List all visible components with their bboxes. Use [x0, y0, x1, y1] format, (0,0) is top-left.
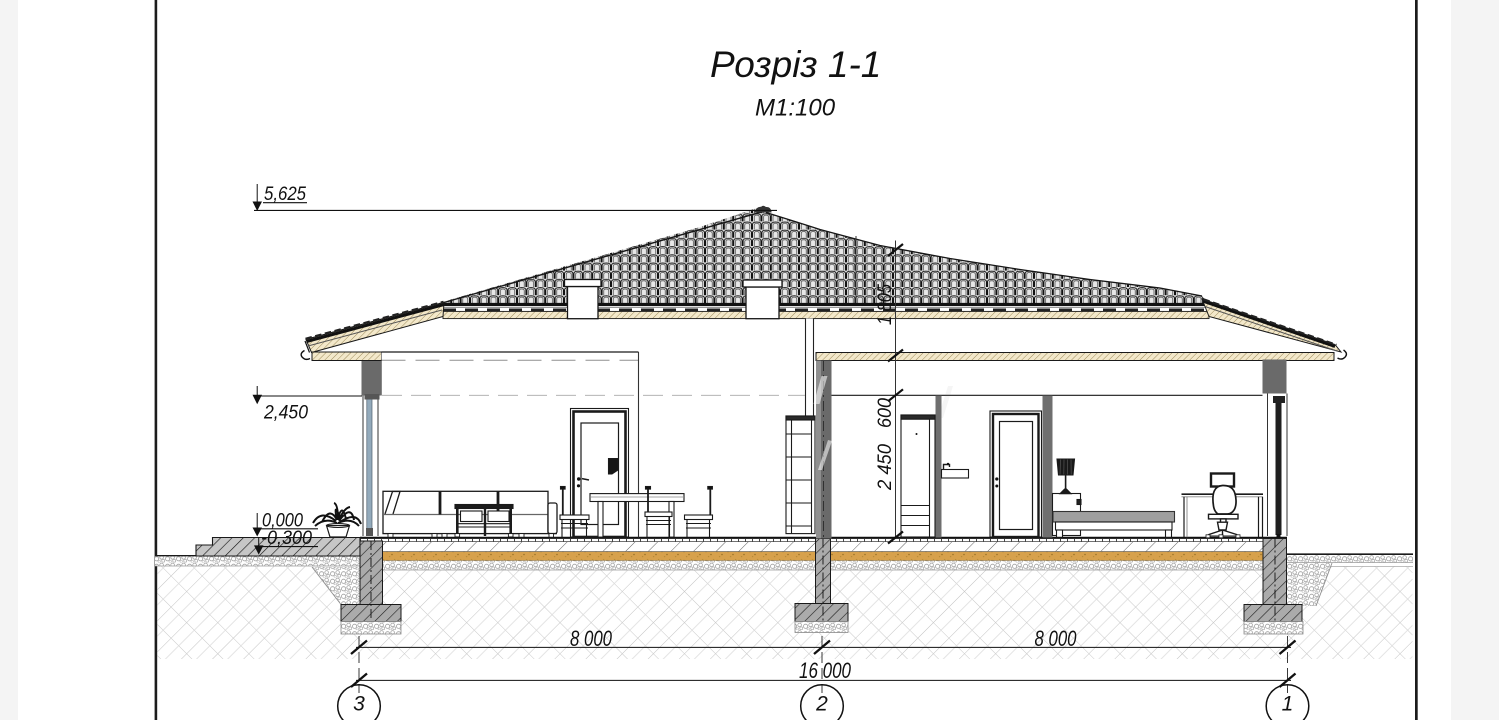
svg-text:5,625: 5,625: [264, 183, 306, 205]
svg-text:2: 2: [815, 693, 828, 716]
svg-text:8 000: 8 000: [1035, 626, 1078, 651]
svg-text:1 805: 1 805: [874, 284, 896, 325]
svg-text:8 000: 8 000: [570, 626, 613, 651]
svg-text:3: 3: [353, 693, 365, 716]
svg-text:М1:100: М1:100: [755, 95, 836, 122]
svg-text:2,450: 2,450: [263, 402, 308, 424]
svg-text:600: 600: [874, 398, 896, 428]
svg-text:-0,300: -0,300: [261, 527, 312, 549]
svg-text:2 450: 2 450: [874, 444, 896, 491]
svg-text:Розріз 1-1: Розріз 1-1: [710, 44, 881, 85]
svg-text:16 000: 16 000: [799, 658, 852, 683]
svg-text:1: 1: [1282, 693, 1294, 716]
